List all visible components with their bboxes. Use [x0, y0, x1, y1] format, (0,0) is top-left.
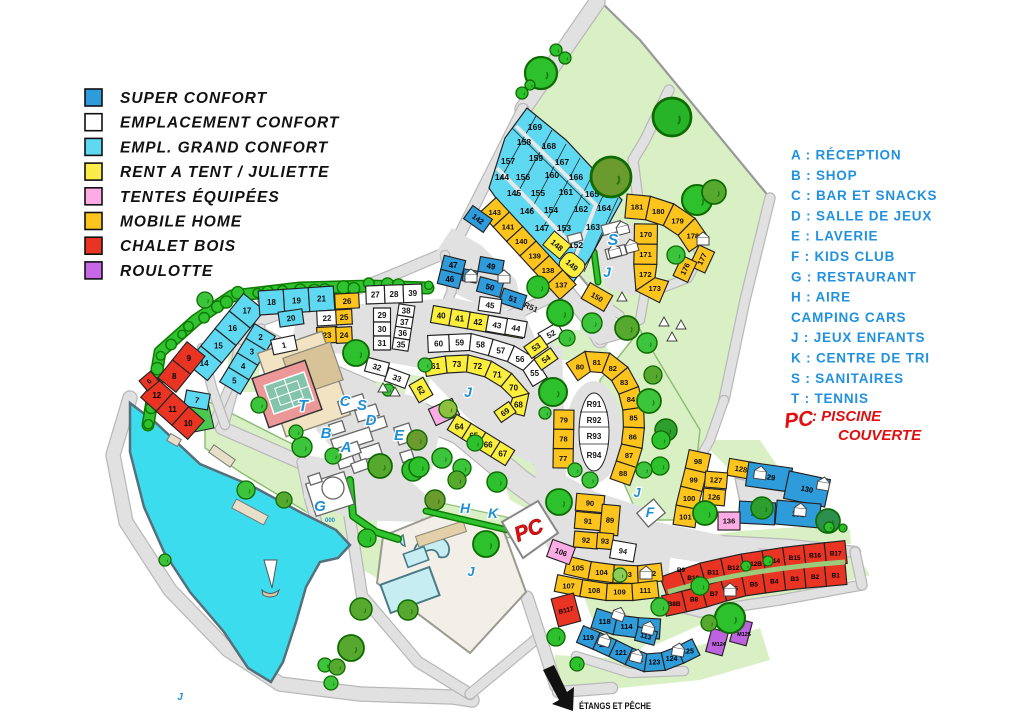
svg-text:77: 77: [559, 454, 567, 463]
svg-text:107: 107: [562, 581, 575, 590]
svg-text:37: 37: [400, 318, 409, 327]
svg-text:160: 160: [545, 170, 559, 180]
svg-text:84: 84: [627, 395, 636, 404]
svg-text:144: 144: [495, 172, 509, 182]
svg-text:16: 16: [228, 324, 237, 333]
svg-text:68: 68: [514, 401, 523, 410]
svg-text:K : CENTRE DE TRI: K : CENTRE DE TRI: [791, 351, 930, 366]
svg-text:138: 138: [542, 266, 555, 275]
svg-text:J: J: [177, 692, 183, 703]
svg-text:59: 59: [455, 338, 464, 347]
svg-text:B : SHOP: B : SHOP: [791, 168, 857, 183]
svg-text:H: H: [460, 500, 471, 516]
svg-text:26: 26: [342, 297, 352, 306]
svg-text:J: J: [633, 485, 641, 500]
svg-text:18: 18: [267, 298, 276, 307]
svg-text:B9: B9: [677, 567, 686, 574]
svg-text:64: 64: [455, 422, 464, 431]
svg-text:J: J: [467, 564, 475, 579]
svg-text:61: 61: [431, 362, 440, 371]
svg-text:58: 58: [476, 341, 485, 350]
svg-text:J: J: [464, 384, 473, 400]
svg-text:B17: B17: [830, 550, 842, 557]
svg-text:000: 000: [325, 518, 336, 524]
svg-text:21: 21: [317, 295, 326, 304]
svg-text:22: 22: [322, 314, 332, 323]
svg-text:56: 56: [516, 355, 525, 364]
svg-text:R93: R93: [587, 432, 602, 441]
svg-text:39: 39: [408, 289, 417, 298]
svg-text:105: 105: [572, 564, 585, 573]
svg-text:SUPER CONFORT: SUPER CONFORT: [120, 90, 268, 107]
svg-text:86: 86: [629, 433, 637, 442]
svg-text:114: 114: [620, 622, 633, 631]
svg-text:EMPLACEMENT CONFORT: EMPLACEMENT CONFORT: [120, 115, 340, 132]
svg-text:B7: B7: [710, 591, 719, 598]
svg-text:20: 20: [286, 313, 297, 323]
svg-text:B16: B16: [809, 553, 821, 560]
svg-text:172: 172: [639, 270, 652, 279]
svg-text:B5: B5: [750, 581, 759, 588]
svg-text:F: F: [646, 504, 655, 520]
svg-text:ÉTANGS ET PÊCHE: ÉTANGS ET PÊCHE: [579, 700, 651, 712]
svg-text:104: 104: [595, 568, 608, 577]
svg-text:35: 35: [396, 340, 405, 349]
svg-text:57: 57: [496, 347, 505, 356]
svg-text:J: J: [603, 264, 612, 280]
svg-text:3: 3: [250, 348, 255, 357]
svg-text:45: 45: [485, 300, 496, 310]
svg-text:K: K: [488, 505, 499, 521]
svg-text:: PISCINE: : PISCINE: [812, 408, 882, 425]
svg-text:11: 11: [168, 405, 177, 414]
svg-text:161: 161: [559, 187, 573, 197]
svg-text:MOBILE HOME: MOBILE HOME: [120, 214, 242, 231]
svg-text:CAMPING CARS: CAMPING CARS: [791, 310, 906, 325]
svg-text:M124: M124: [712, 642, 727, 648]
svg-text:87: 87: [625, 451, 633, 460]
svg-text:42: 42: [474, 318, 483, 327]
svg-text:109: 109: [613, 588, 626, 597]
svg-text:4: 4: [241, 362, 246, 371]
svg-text:158: 158: [517, 137, 531, 147]
svg-text:145: 145: [507, 188, 521, 198]
svg-text:COUVERTE: COUVERTE: [838, 427, 922, 444]
svg-text:B15: B15: [789, 555, 801, 562]
svg-text:83: 83: [620, 378, 628, 387]
svg-text:R91: R91: [587, 400, 602, 409]
svg-text:A : RÉCEPTION: A : RÉCEPTION: [791, 148, 901, 163]
svg-text:67: 67: [498, 449, 507, 458]
svg-text:141: 141: [502, 222, 515, 231]
svg-text:19: 19: [292, 296, 301, 305]
svg-text:S: S: [608, 232, 619, 249]
svg-text:167: 167: [555, 157, 569, 167]
svg-text:G : RESTAURANT: G : RESTAURANT: [791, 269, 917, 284]
svg-text:B12: B12: [727, 565, 739, 572]
svg-text:E: E: [394, 427, 405, 444]
svg-text:10: 10: [184, 419, 193, 428]
svg-text:EMPL. GRAND CONFORT: EMPL. GRAND CONFORT: [120, 139, 329, 156]
svg-text:123: 123: [649, 660, 661, 667]
svg-text:108: 108: [588, 586, 601, 595]
svg-text:70: 70: [509, 384, 518, 393]
svg-text:166: 166: [569, 172, 583, 182]
svg-text:F : KIDS CLUB: F : KIDS CLUB: [791, 249, 895, 264]
svg-text:41: 41: [455, 315, 464, 324]
svg-text:31: 31: [378, 339, 387, 348]
svg-text:171: 171: [639, 250, 652, 259]
svg-text:163: 163: [586, 222, 600, 232]
svg-text:136: 136: [723, 517, 736, 526]
svg-text:17: 17: [242, 307, 251, 316]
svg-text:9: 9: [187, 354, 192, 363]
svg-text:R92: R92: [587, 416, 602, 425]
svg-text:146: 146: [520, 206, 534, 216]
svg-text:156: 156: [516, 172, 530, 182]
svg-text:CHALET BOIS: CHALET BOIS: [120, 238, 236, 255]
svg-text:A: A: [340, 439, 352, 456]
svg-text:30: 30: [378, 325, 387, 334]
svg-text:72: 72: [473, 362, 482, 371]
svg-text:155: 155: [531, 188, 545, 198]
svg-text:S : SANITAIRES: S : SANITAIRES: [791, 371, 904, 386]
svg-text:162: 162: [574, 204, 588, 214]
svg-text:29: 29: [378, 311, 387, 320]
svg-text:173: 173: [648, 284, 661, 293]
svg-text:27: 27: [371, 291, 380, 300]
svg-text:H : AIRE: H : AIRE: [791, 290, 851, 305]
svg-text:B11: B11: [707, 569, 719, 576]
svg-text:157: 157: [501, 156, 515, 166]
svg-text:73: 73: [452, 360, 461, 369]
svg-text:139: 139: [528, 251, 541, 260]
svg-text:40: 40: [437, 312, 446, 321]
svg-text:B2: B2: [811, 574, 820, 581]
svg-text:D : SALLE DE JEUX: D : SALLE DE JEUX: [791, 208, 932, 223]
svg-text:D: D: [366, 412, 377, 429]
svg-text:66: 66: [484, 440, 493, 449]
svg-text:T : TENNIS: T : TENNIS: [791, 391, 869, 406]
svg-text:55: 55: [530, 369, 539, 378]
svg-text:B4: B4: [770, 579, 779, 586]
svg-text:170: 170: [640, 230, 653, 239]
svg-text:121: 121: [615, 650, 627, 657]
svg-text:B1: B1: [832, 572, 841, 579]
svg-text:B8: B8: [690, 597, 699, 604]
svg-text:5: 5: [232, 377, 237, 386]
svg-text:TENTES ÉQUIPÉES: TENTES ÉQUIPÉES: [120, 189, 280, 206]
svg-text:119: 119: [583, 635, 594, 642]
svg-text:15: 15: [214, 342, 223, 351]
svg-text:2: 2: [258, 333, 263, 342]
svg-text:124: 124: [666, 656, 678, 663]
svg-text:G: G: [314, 498, 326, 515]
svg-text:38: 38: [402, 307, 411, 316]
svg-text:80: 80: [576, 363, 584, 372]
svg-text:C: C: [340, 393, 352, 410]
svg-text:154: 154: [544, 205, 558, 215]
svg-text:140: 140: [515, 237, 528, 246]
svg-text:101: 101: [679, 512, 692, 521]
svg-text:168: 168: [542, 141, 556, 151]
svg-text:47: 47: [449, 261, 458, 270]
svg-text:98: 98: [694, 457, 702, 466]
svg-text:24: 24: [339, 331, 349, 340]
svg-text:179: 179: [671, 216, 684, 225]
svg-text:E : LAVERIE: E : LAVERIE: [791, 229, 878, 244]
svg-text:71: 71: [493, 370, 502, 379]
svg-text:100: 100: [683, 494, 696, 503]
svg-text:85: 85: [629, 414, 637, 423]
svg-text:B3: B3: [791, 576, 800, 583]
svg-text:137: 137: [555, 280, 568, 289]
svg-text:ROULOTTE: ROULOTTE: [120, 263, 213, 280]
svg-text:M125: M125: [737, 632, 751, 638]
svg-text:89: 89: [605, 515, 614, 525]
svg-text:164: 164: [597, 203, 611, 213]
svg-text:B: B: [321, 425, 332, 442]
svg-text:25: 25: [339, 313, 349, 322]
svg-text:60: 60: [434, 339, 443, 348]
svg-text:T: T: [298, 398, 309, 415]
svg-text:36: 36: [398, 329, 407, 338]
svg-text:PC: PC: [783, 407, 815, 433]
svg-text:143: 143: [488, 208, 501, 217]
svg-text:118: 118: [599, 617, 611, 626]
svg-text:99: 99: [690, 475, 698, 484]
svg-text:28: 28: [390, 290, 399, 299]
svg-text:169: 169: [528, 122, 542, 132]
svg-text:92: 92: [581, 535, 590, 545]
svg-text:111: 111: [639, 586, 651, 595]
svg-text:91: 91: [583, 516, 592, 526]
svg-text:79: 79: [560, 415, 568, 424]
svg-text:88: 88: [619, 469, 627, 478]
svg-text:81: 81: [593, 358, 601, 367]
svg-text:RENT A TENT / JULIETTE: RENT A TENT / JULIETTE: [120, 164, 329, 181]
svg-text:181: 181: [631, 203, 644, 212]
svg-text:90: 90: [585, 498, 594, 508]
svg-text:78: 78: [559, 435, 567, 444]
svg-text:180: 180: [652, 207, 665, 216]
svg-text:8: 8: [172, 372, 177, 381]
svg-text:159: 159: [529, 153, 543, 163]
svg-text:126: 126: [707, 492, 720, 502]
svg-text:93: 93: [600, 536, 609, 546]
svg-text:46: 46: [445, 275, 454, 284]
svg-text:C : BAR ET SNACKS: C : BAR ET SNACKS: [791, 188, 937, 203]
svg-text:153: 153: [557, 223, 571, 233]
svg-text:82: 82: [609, 364, 617, 373]
svg-text:12: 12: [152, 391, 161, 400]
svg-text:J : JEUX ENFANTS: J : JEUX ENFANTS: [791, 330, 925, 345]
svg-text:147: 147: [535, 223, 549, 233]
svg-text:R94: R94: [587, 451, 602, 460]
svg-text:127: 127: [709, 475, 722, 485]
